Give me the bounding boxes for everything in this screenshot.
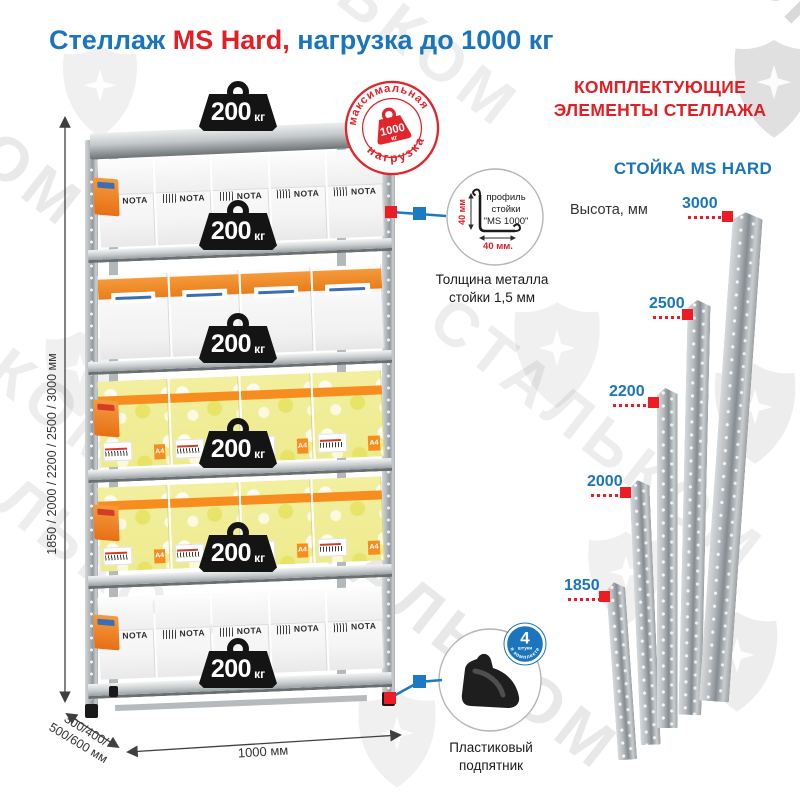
side-sticker [93, 399, 120, 437]
box-a4-label: A4 [368, 540, 380, 555]
box-a4-label: A4 [153, 549, 165, 564]
upright-height-label: 3000 [682, 195, 718, 213]
rack-foot-front-left [85, 704, 98, 718]
upright-marker-square [722, 211, 733, 222]
thickness-line2: стойки 1,5 мм [422, 289, 562, 307]
weight-value: 200 [211, 217, 251, 246]
weight-body: 200кг [199, 651, 277, 688]
upright-height-label: 2000 [587, 473, 623, 491]
page-title: Стеллаж MS Hard, нагрузка до 1000 кг [49, 25, 554, 56]
rack-heights-dimension: 1850 / 2000 / 2200 / 2500 / 3000 мм [45, 299, 61, 609]
box-side-label [318, 538, 348, 557]
profile-callout-red-square [385, 206, 397, 218]
box-flap [212, 153, 269, 191]
box-barcode [277, 625, 290, 635]
page: { "title": {"text_blue_1": "Стеллаж ", "… [0, 0, 800, 800]
box-brand-row: NOTA [270, 188, 326, 200]
weight-body: 200кг [199, 213, 277, 250]
weight-value: 200 [211, 330, 251, 359]
box-orange-stripe [169, 391, 239, 403]
box-barcode [220, 627, 233, 637]
box-orange-stripe [169, 496, 239, 508]
weight-badge: 200кг [199, 418, 277, 468]
box-side-label [103, 546, 133, 565]
box-lid-label [111, 292, 156, 304]
box-barcode [334, 187, 347, 197]
upright-2200 [657, 388, 678, 728]
profile-diagram: 40 мм 40 мм. профиль стойки "MS 1000" [445, 167, 545, 267]
badge-unit: штуки [518, 647, 533, 652]
weight-unit: кг [254, 342, 265, 356]
profile-thickness-caption: Толщина металла стойки 1,5 мм [422, 271, 562, 306]
box-brand-label: NOTA [351, 186, 377, 197]
foot-callout-red-square [384, 692, 396, 704]
paper-box: A4 [312, 476, 385, 563]
weight-value: 200 [211, 655, 251, 684]
box-barcode [162, 630, 175, 640]
box-a4-label: A4 [296, 439, 308, 454]
box-orange-stripe [312, 491, 382, 503]
upright-marker-square [620, 487, 631, 498]
paper-box [312, 264, 385, 351]
box-orange-stripe [312, 385, 382, 397]
box-flap [326, 586, 383, 622]
upright-dotted-line [591, 494, 620, 497]
box-a4-label: A4 [368, 436, 380, 451]
weight-unit: кг [254, 551, 265, 565]
weight-badge: 200кг [199, 313, 277, 363]
weight-badge: 200кг [199, 200, 277, 250]
box-brand-label: NOTA [122, 630, 148, 641]
weight-body: 200кг [199, 326, 277, 363]
box-barcode [162, 194, 175, 204]
box-side-label [103, 442, 133, 462]
upright-section-title: СТОЙКА MS HARD [593, 159, 793, 179]
upright-marker-square [648, 397, 659, 408]
thickness-line1: Толщина металла [422, 271, 562, 289]
box-brand-label: NOTA [351, 621, 377, 632]
box-lid-label [254, 286, 299, 298]
side-sticker [93, 614, 119, 650]
weight-value: 200 [211, 435, 251, 464]
box-flap [269, 151, 326, 189]
box-brand-row: NOTA [327, 185, 383, 197]
box-brand-row: NOTA [213, 625, 269, 637]
box-lid-label [325, 283, 370, 295]
paper-box [97, 273, 170, 360]
upright-dotted-line [688, 216, 723, 219]
weight-unit: кг [254, 447, 265, 461]
upright-height-label: 2500 [649, 295, 685, 313]
weight-badge: 200кг [199, 638, 277, 688]
title-part-blue-2: нагрузка до 1000 кг [290, 25, 554, 55]
box-orange-stripe [241, 388, 311, 400]
box-flap [155, 155, 212, 193]
profile-text-line2: стойки [491, 204, 520, 215]
box-flap [212, 591, 269, 627]
box-brand-label: NOTA [294, 623, 320, 634]
box-flap [155, 593, 212, 629]
weight-body: 200кг [199, 94, 277, 131]
upright-dotted-line [653, 316, 682, 319]
upright-marker-square [682, 309, 693, 320]
box-a4-label: A4 [296, 543, 308, 558]
box-barcode [277, 189, 290, 199]
weight-value: 200 [211, 98, 251, 127]
profile-text-line3: "MS 1000" [484, 216, 529, 227]
upright-height-label: 2200 [609, 383, 645, 401]
profile-vdim-label: 40 мм [457, 199, 467, 225]
weight-body: 200кг [199, 431, 277, 468]
title-part-red: MS Hard, [173, 25, 290, 55]
paper-box: NOTA [269, 151, 328, 241]
weight-badge: 200кг [199, 81, 277, 131]
profile-callout-blue-square [413, 207, 426, 220]
profile-text-line1: профиль [486, 192, 525, 203]
paper-box: NOTA [326, 586, 384, 670]
box-brand-label: NOTA [237, 626, 263, 637]
weight-unit: кг [254, 667, 265, 681]
foot-callout-blue-square [413, 675, 426, 688]
weight-badge: 200кг [199, 522, 277, 572]
height-units-label: Высота, мм [570, 202, 648, 218]
box-flap [269, 589, 326, 625]
weight-body: 200кг [199, 535, 277, 572]
box-side-label [318, 433, 348, 453]
components-header-line2: ЭЛЕМЕНТЫ СТЕЛЛАЖА [548, 99, 772, 122]
rack-foot-back-left [109, 686, 118, 697]
paper-box: NOTA [269, 589, 327, 673]
box-brand-row: NOTA [270, 623, 326, 635]
side-sticker [93, 504, 120, 541]
title-part-blue-1: Стеллаж [49, 25, 173, 55]
weight-value: 200 [211, 539, 251, 568]
plastic-foot-caption: Пластиковый подпятник [421, 739, 561, 774]
weight-unit: кг [254, 229, 265, 243]
components-header-line1: КОМПЛЕКТУЮЩИЕ [548, 76, 772, 99]
upright-dotted-line [613, 404, 648, 407]
box-barcode [334, 623, 347, 633]
box-lid-label [182, 289, 227, 301]
foot-caption-line1: Пластиковый [421, 739, 561, 757]
weight-unit: кг [254, 110, 265, 124]
brand-shield-logo [505, 298, 609, 417]
badge-value: 4 [520, 629, 530, 648]
rack-bottom-frame [115, 695, 367, 711]
upright-marker-square [599, 591, 610, 602]
box-a4-label: A4 [154, 444, 166, 459]
upright-dotted-line [568, 598, 599, 601]
profile-hdim-label: 40 мм. [483, 241, 513, 252]
side-sticker [93, 177, 120, 216]
box-brand-label: NOTA [294, 188, 320, 199]
upright-height-label: 1850 [564, 577, 600, 595]
box-orange-stripe [241, 493, 311, 505]
components-header: КОМПЛЕКТУЮЩИЕ ЭЛЕМЕНТЫ СТЕЛЛАЖА [548, 76, 772, 122]
quantity-badge: 4 штуки в комплекте [503, 622, 547, 666]
paper-box: A4 [312, 370, 385, 459]
box-brand-label: NOTA [122, 195, 148, 206]
box-brand-row: NOTA [327, 621, 383, 633]
foot-caption-line2: подпятник [421, 757, 561, 775]
